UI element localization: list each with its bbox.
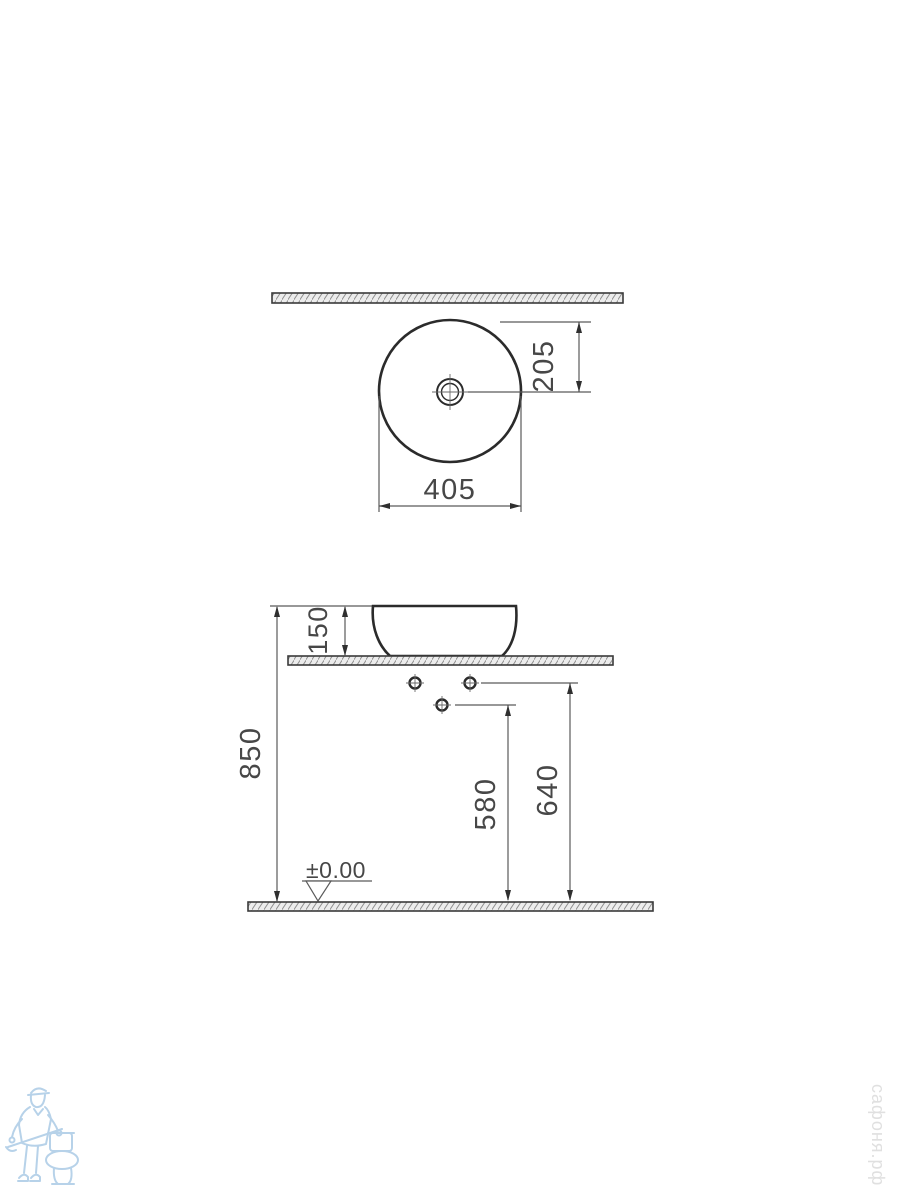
dim-label-150: 150	[303, 605, 333, 655]
arrow-down-icon	[274, 891, 280, 902]
basin-outline-side	[373, 606, 517, 656]
arrow-down-icon	[342, 645, 348, 656]
site-watermark: сафоня.рф	[868, 1084, 888, 1186]
plumber-cap-icon	[31, 1088, 46, 1093]
top-view: 205 405	[272, 293, 623, 512]
arrow-up-icon	[567, 683, 573, 694]
datum-triangle-icon	[306, 881, 331, 901]
plumber-right-leg	[36, 1146, 38, 1173]
arrow-up-icon	[274, 606, 280, 617]
toilet-bowl-icon	[46, 1151, 78, 1169]
plumber-body	[19, 1107, 51, 1146]
arrow-up-icon	[505, 705, 511, 716]
plumber-with-toilet-logo	[6, 1088, 78, 1184]
counter-edge-top-view	[272, 293, 623, 303]
dimension-580: 580	[455, 705, 516, 901]
arrow-up-icon	[342, 606, 348, 617]
datum-label: ±0.00	[306, 857, 366, 883]
plunger-stick-icon	[8, 1129, 62, 1147]
arrow-down-icon	[567, 890, 573, 901]
plumber-left-hand	[10, 1138, 15, 1143]
dim-label-205: 205	[528, 340, 560, 393]
dimension-850: 850	[235, 606, 280, 902]
dimension-150: 150	[303, 605, 348, 656]
dim-label-580: 580	[470, 778, 502, 831]
arrow-down-icon	[576, 381, 582, 392]
plumber-left-boot	[18, 1175, 28, 1181]
toilet-pedestal	[54, 1168, 72, 1184]
arrow-up-icon	[576, 322, 582, 333]
drawing-canvas: 205 405	[0, 0, 900, 1200]
hole-center	[433, 696, 451, 714]
hole-right	[461, 674, 479, 692]
floor-datum: ±0.00	[302, 857, 372, 901]
dim-label-640: 640	[532, 764, 564, 817]
side-view: 150	[235, 605, 653, 911]
plumber-face	[31, 1095, 45, 1107]
plumber-left-leg	[24, 1146, 27, 1173]
plunger-cup-icon	[6, 1147, 16, 1151]
countertop-side-view	[288, 656, 613, 665]
hole-left	[406, 674, 424, 692]
wall-holes	[406, 674, 479, 714]
arrow-right-icon	[510, 503, 521, 509]
arrow-left-icon	[379, 503, 390, 509]
floor-bar	[248, 902, 653, 911]
dim-label-405: 405	[424, 474, 477, 506]
plumber-right-boot	[30, 1175, 40, 1181]
technical-drawing: 205 405	[0, 0, 900, 1200]
plumber-collar	[34, 1109, 43, 1115]
arrow-down-icon	[505, 890, 511, 901]
dim-label-850: 850	[235, 727, 267, 780]
